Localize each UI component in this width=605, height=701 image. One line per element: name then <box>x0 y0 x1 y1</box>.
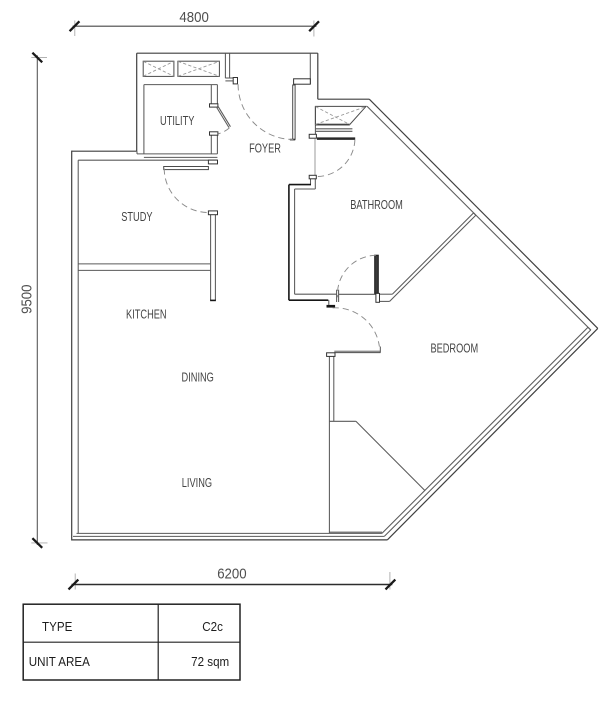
svg-text:DINING: DINING <box>182 371 214 385</box>
svg-text:9500: 9500 <box>19 284 36 313</box>
svg-text:UTILITY: UTILITY <box>160 115 195 129</box>
svg-text:BEDROOM: BEDROOM <box>430 342 478 356</box>
svg-text:STUDY: STUDY <box>121 211 153 225</box>
svg-text:FOYER: FOYER <box>249 142 281 156</box>
svg-text:KITCHEN: KITCHEN <box>126 308 166 322</box>
svg-text:UNIT AREA: UNIT AREA <box>29 655 91 670</box>
svg-text:4800: 4800 <box>179 9 208 26</box>
svg-text:TYPE: TYPE <box>42 620 72 635</box>
svg-text:LIVING: LIVING <box>182 476 212 490</box>
svg-text:6200: 6200 <box>217 566 246 583</box>
svg-text:72 sqm: 72 sqm <box>191 655 229 670</box>
svg-text:C2c: C2c <box>202 620 223 635</box>
svg-text:BATHROOM: BATHROOM <box>350 199 403 213</box>
